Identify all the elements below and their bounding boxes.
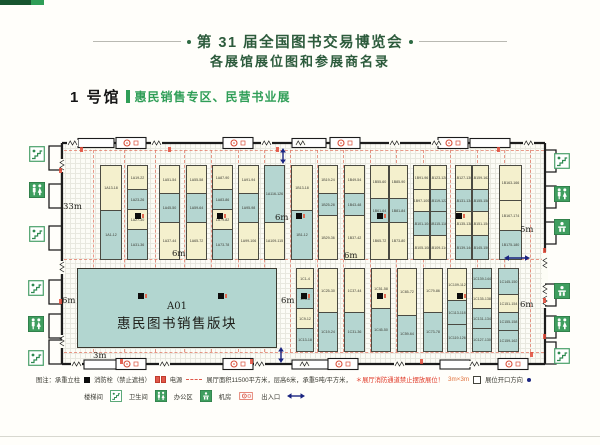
stairwell-icon [554, 153, 570, 169]
booth-cell: 1C25-30 [319, 269, 337, 313]
legend-exit-label: 出入口 [261, 392, 280, 401]
stairwell-icon [554, 348, 570, 364]
load-pillar [377, 293, 383, 299]
booth-cell: 1B1-12 [292, 211, 312, 259]
booth-label: 1B73-80 [392, 239, 406, 243]
booth-label: 1C135-138 [473, 297, 491, 301]
legend-hydrant-label: 消防栓（禁止遮挡） [94, 375, 151, 384]
booth-label: 1C145-150 [500, 280, 518, 284]
booth-label: 1A116-126 [266, 192, 283, 196]
legend-stair-label: 楼梯间 [84, 392, 103, 401]
booth-cell: 1C151-154 [499, 295, 518, 313]
load-pillar [301, 293, 307, 299]
legend-row-symbols: 图注：承重立柱 消防栓（禁止遮挡） 电源 展厅面积11500平方米，层高6米，承… [36, 375, 584, 384]
booth-cell: 1B167-174 [500, 201, 521, 231]
office-area-icon [554, 219, 570, 235]
booth-label: 1A59-64 [190, 206, 204, 210]
booth-label: 1B37-42 [348, 236, 362, 240]
restroom-icon [28, 316, 44, 332]
booth-column: 1B163-1661B167-1741B175-180 [499, 165, 522, 260]
booth-column: 1A13-181A1-12 [100, 165, 122, 260]
booth-label: 1B101-104 [414, 222, 429, 226]
dimension-label: 33m [63, 202, 82, 212]
booth-label: 1B43-48 [348, 203, 362, 207]
stairwell-icon [28, 350, 44, 366]
booth-label: 1A55-58 [190, 178, 204, 182]
booth-label: 1A37-44 [163, 239, 177, 243]
booth-cell: 1C13-18 [297, 329, 313, 351]
booth-label: 1B155-158 [473, 199, 488, 203]
booth-cell: 1A55-58 [187, 166, 206, 194]
booth-cell: 1B61-64 [371, 199, 388, 223]
booth-cell: 1B43-48 [345, 194, 364, 216]
booth-column: 1A51-541A45-501A37-44 [159, 165, 180, 260]
booth-label: 1B1-12 [296, 233, 308, 237]
booth-cell: 1B105-108 [414, 236, 429, 259]
booth-label: 1B127-130 [456, 176, 471, 180]
booth-cell: 1C145-150 [499, 269, 518, 295]
booth-cell: 1A65-72 [187, 223, 206, 259]
booth-label: 1A31-36 [131, 243, 145, 247]
booth-label: 1A99-106 [241, 239, 257, 243]
booth-cell: 1C31-36 [345, 313, 364, 351]
booth-cell: 1B145-150 [473, 236, 488, 259]
legend-hall-info: 展厅面积11500平方米，层高6米，承重5吨/平方米， [206, 375, 351, 384]
booth-cell: 1B55-60 [371, 166, 388, 199]
pillar-symbol [84, 377, 90, 383]
opening-direction-symbol [527, 378, 531, 382]
booth-label: 1C51-58 [374, 287, 388, 291]
booth-cell: 1B127-130 [456, 166, 471, 190]
booth-label: 1A23-26 [131, 198, 145, 202]
booth-label: 1C65-72 [400, 290, 414, 294]
booth-label: 1B123-128 [431, 176, 446, 180]
booth-label: 1C19-24 [321, 330, 335, 334]
booth-column: 1B49-541B43-481B37-42 [344, 165, 365, 260]
booth-label: 1C59-64 [400, 332, 414, 336]
legend-row-facilities: 楼梯间 卫生间 办公区 机房 出入口 [84, 390, 584, 402]
booth-cell: 1C73-78 [424, 313, 442, 351]
booth-cell: 1C9-12 [297, 309, 313, 329]
office-area-icon [554, 283, 570, 299]
booth-label: 1B91-96 [415, 176, 429, 180]
booth-cell: 1B101-104 [414, 212, 429, 236]
booth-cell: 1B25-28 [319, 194, 337, 216]
booth-label: 1B159-162 [473, 176, 488, 180]
booth-cell: 1A95-98 [239, 194, 258, 223]
booth-cell: 1C59-64 [398, 316, 416, 351]
stairwell-icon [29, 146, 45, 162]
booth-cell: 1A73-78 [213, 230, 232, 259]
legend: 图注：承重立柱 消防栓（禁止遮挡） 电源 展厅面积11500平方米，层高6米，承… [36, 375, 584, 402]
booth-cell: 1C79-86 [424, 269, 442, 313]
booth-cell: 1C119-126 [448, 325, 466, 351]
booth-label: 1C45-50 [374, 328, 388, 332]
booth-cell: 1B159-162 [473, 166, 488, 190]
booth-cell: 1B163-166 [500, 166, 521, 201]
booth-cell: 1B19-24 [319, 166, 337, 194]
booth-label: 1C73-78 [426, 330, 440, 334]
booth-cell: 1C139-144 [473, 269, 491, 289]
booth-label: 1B97-100 [414, 199, 429, 203]
booth-cell: 1B123-128 [431, 166, 446, 190]
booth-cell: 1B65-72 [371, 223, 388, 259]
booth-label: 1B135-138 [456, 222, 471, 226]
load-pillar [377, 213, 383, 219]
machine-room-icon [238, 392, 254, 400]
booth-cell: 1B85-90 [390, 166, 407, 199]
dimension-label: 6m [344, 251, 357, 261]
booth-label: 1A1-12 [105, 233, 117, 237]
booth-cell: 1A45-50 [160, 194, 179, 223]
booth-label: 1C113-118 [448, 311, 465, 315]
restroom-icon [554, 316, 570, 332]
booth-cell: 1C45-50 [372, 309, 390, 351]
booth-label: 1C37-44 [348, 289, 362, 293]
booth-cell: 1A13-18 [101, 166, 121, 211]
booth-label: 1A73-78 [216, 243, 230, 247]
booth-column: 1B91-961B97-1001B101-1041B105-108 [413, 165, 430, 260]
booth-label: 1A45-50 [163, 206, 177, 210]
booth-label: 1B167-174 [502, 214, 520, 218]
restroom-icon [554, 186, 570, 202]
booth-label: 1A65-72 [190, 239, 204, 243]
stairwell-icon [110, 390, 122, 402]
booth-label: 1B81-84 [392, 209, 406, 213]
legend-pillar-label: 图注：承重立柱 [36, 375, 80, 384]
restroom-icon [29, 182, 45, 198]
booth-label: 1C127-130 [473, 338, 491, 342]
booth-cell: 1A99-106 [239, 223, 258, 259]
booth-label: 1B151-154 [473, 222, 488, 226]
booth-cell: 1B81-84 [390, 199, 407, 223]
booth-label: 1A95-98 [242, 206, 256, 210]
booth-label: 1C109-112 [448, 283, 466, 287]
a01-sales-block: A01 惠民图书销售版块 [77, 268, 277, 348]
booth-cell: 1A23-26 [128, 190, 147, 210]
booth-column: 1C1-41C5-81C9-121C13-18 [296, 268, 314, 352]
dimension-label: 6m [62, 296, 75, 306]
load-pillar [218, 293, 224, 299]
restroom-icon [155, 390, 167, 402]
booth-label: 1B49-54 [348, 178, 362, 182]
booth-cell: 1C113-118 [448, 301, 466, 325]
booth-column: 1C109-1121C113-1181C119-126 [447, 268, 467, 352]
booth-label: 1B29-36 [321, 236, 335, 240]
load-pillar [138, 293, 144, 299]
booth-label: 1B175-180 [502, 243, 520, 247]
page: 第 31 届全国图书交易博览会 各展馆展位图和参展商名录 1 号馆 惠民销售专区… [0, 0, 600, 445]
booth-column: 1C51-581C45-50 [371, 268, 391, 352]
booth-label: 1A13-18 [104, 186, 118, 190]
booth-cell: 1A1-12 [101, 211, 121, 259]
dimension-label: 5m [520, 225, 533, 235]
booth-cell: 1B131-134 [456, 190, 471, 212]
booth-column: 1B159-1621B155-1581B151-1541B145-150 [472, 165, 489, 260]
booth-label: 1C159-162 [500, 339, 518, 343]
office-area-icon [200, 390, 212, 402]
booth-label: 1B115-118 [431, 222, 446, 226]
booth-label: 1B139-144 [456, 246, 471, 250]
a01-name: 惠民图书销售版块 [117, 312, 237, 332]
booth-cell: 1B119-122 [431, 190, 446, 212]
booth-label: 1B131-134 [456, 199, 471, 203]
legend-office-label: 办公区 [174, 392, 193, 401]
booth-column: 1C79-861C73-78 [423, 268, 443, 352]
load-pillar [457, 293, 463, 299]
booth-label: 1C31-36 [348, 330, 362, 334]
booth-column: 1B85-901B81-841B73-80 [389, 165, 408, 260]
booth-cell: 1B139-144 [456, 236, 471, 259]
booth-label: 1C139-144 [473, 277, 491, 281]
fire-lane-line [530, 150, 531, 352]
booth-column: 1C37-441C31-36 [344, 268, 365, 352]
booth-cell: 1C19-24 [319, 313, 337, 351]
booth-label: 1B61-64 [373, 209, 387, 213]
booth-label: 1B145-150 [473, 246, 488, 250]
booth-column: 1A91-941A95-981A99-106 [238, 165, 259, 260]
booth-cell: 1C65-72 [398, 269, 416, 316]
booth-symbol [473, 376, 481, 384]
legend-wc-label: 卫生间 [129, 392, 148, 401]
booth-cell: 1B49-54 [345, 166, 364, 194]
legend-fire-warning: ＊展厅消防通道禁止摆放展位！ [356, 375, 444, 384]
booth-label: 1C13-18 [298, 338, 312, 342]
booth-label: 1C25-30 [321, 289, 335, 293]
legend-booth-size: 3m×3m [448, 376, 469, 383]
booth-label: 1C151-154 [500, 302, 518, 306]
legend-machine-label: 机房 [219, 392, 232, 401]
booth-cell: 1C131-134 [473, 309, 491, 329]
booth-label: 1A91-94 [242, 178, 256, 182]
booth-cell: 1C127-130 [473, 329, 491, 351]
booth-cell: 1C5-8 [297, 289, 313, 309]
booth-column: 1B123-1281B119-1221B115-1181B109-114 [430, 165, 447, 260]
booth-label: 1B119-122 [431, 199, 446, 203]
booth-column: 1C25-301C19-24 [318, 268, 338, 352]
booth-cell: 1C135-138 [473, 289, 491, 309]
booth-column: 1C145-1501C151-1541C155-1581C159-162 [498, 268, 519, 352]
dimension-label: 6m [172, 249, 185, 259]
booth-cell: 1A87-90 [213, 166, 232, 190]
stairwell-icon [29, 226, 45, 242]
booth-cell: 1A91-94 [239, 166, 258, 194]
booth-cell: 1B175-180 [500, 231, 521, 259]
booth-cell: 1B151-154 [473, 212, 488, 236]
power-line-symbol [186, 379, 202, 380]
dimension-label: 3m [93, 351, 106, 361]
booth-label: 1B13-18 [295, 186, 309, 190]
dimension-label: 6m [281, 296, 294, 306]
booth-label: 1B19-24 [321, 178, 335, 182]
booth-cell: 1C159-162 [499, 331, 518, 351]
fire-hydrant-icon [155, 376, 166, 383]
load-pillar [296, 213, 302, 219]
booth-cell: 1A31-36 [128, 230, 147, 259]
booth-column: 1C139-1441C135-1381C131-1341C127-130 [472, 268, 492, 352]
booth-cell: 1A51-54 [160, 166, 179, 194]
booth-label: 1B85-90 [392, 180, 406, 184]
fire-lane-line [64, 352, 544, 353]
dimension-label: 6m [275, 213, 288, 223]
booth-cell: 1C51-58 [372, 269, 390, 309]
booth-cell: 1A83-86 [213, 190, 232, 210]
entrance-exit-icon [287, 392, 305, 400]
booth-cell: 1C37-44 [345, 269, 364, 313]
booth-label: 1A19-22 [131, 176, 145, 180]
booth-label: 1A51-54 [163, 178, 177, 182]
dimension-label: 6m [520, 300, 533, 310]
booth-label: 1C155-158 [500, 320, 518, 324]
booth-column: 1A55-581A59-641A65-72 [186, 165, 207, 260]
booth-cell: 1B97-100 [414, 190, 429, 212]
booth-cell: 1B91-96 [414, 166, 429, 190]
booth-column: 1B19-241B25-281B29-36 [318, 165, 338, 260]
booth-label: 1C119-126 [448, 336, 466, 340]
load-pillar [217, 213, 223, 219]
booth-label: 1B55-60 [373, 180, 387, 184]
booth-cell: 1B109-114 [431, 236, 446, 259]
page-bottom-rule [0, 436, 600, 437]
booth-label: 1A87-90 [216, 176, 230, 180]
legend-opening-label: 展位开口方向 [485, 375, 523, 384]
stairwell-icon [28, 280, 44, 296]
booth-label: 1B163-166 [502, 181, 520, 185]
booth-cell: 1B29-36 [319, 216, 337, 259]
booth-label: 1C1-4 [300, 277, 310, 281]
booth-column: 1C65-721C59-64 [397, 268, 417, 352]
legend-power-label: 电源 [170, 375, 183, 384]
booth-column: 1B13-181B1-12 [291, 165, 313, 260]
booth-cell: 1A59-64 [187, 194, 206, 223]
booth-cell: 1B13-18 [292, 166, 312, 211]
booth-label: 1C131-134 [473, 317, 491, 321]
booth-label: 1C9-12 [299, 317, 311, 321]
booth-cell: 1C155-158 [499, 313, 518, 331]
booth-label: 1A109-115 [266, 239, 283, 243]
fire-lane-line [64, 150, 544, 151]
booth-cell: 1B73-80 [390, 223, 407, 259]
booth-cell: 1A19-22 [128, 166, 147, 190]
booth-label: 1B109-114 [431, 246, 446, 250]
booth-cell: 1B155-158 [473, 190, 488, 212]
booth-label: 1A83-86 [216, 198, 230, 202]
booth-cell: 1B115-118 [431, 212, 446, 236]
a01-code: A01 [167, 301, 187, 312]
load-pillar [456, 213, 462, 219]
booth-cell: 1A109-115 [265, 223, 284, 259]
booth-label: 1B65-72 [373, 239, 387, 243]
load-pillar [135, 213, 141, 219]
booth-label: 1C79-86 [426, 289, 440, 293]
booth-cell: 1C1-4 [297, 269, 313, 289]
booth-label: 1B105-108 [414, 246, 429, 250]
booth-label: 1B25-28 [321, 203, 335, 207]
